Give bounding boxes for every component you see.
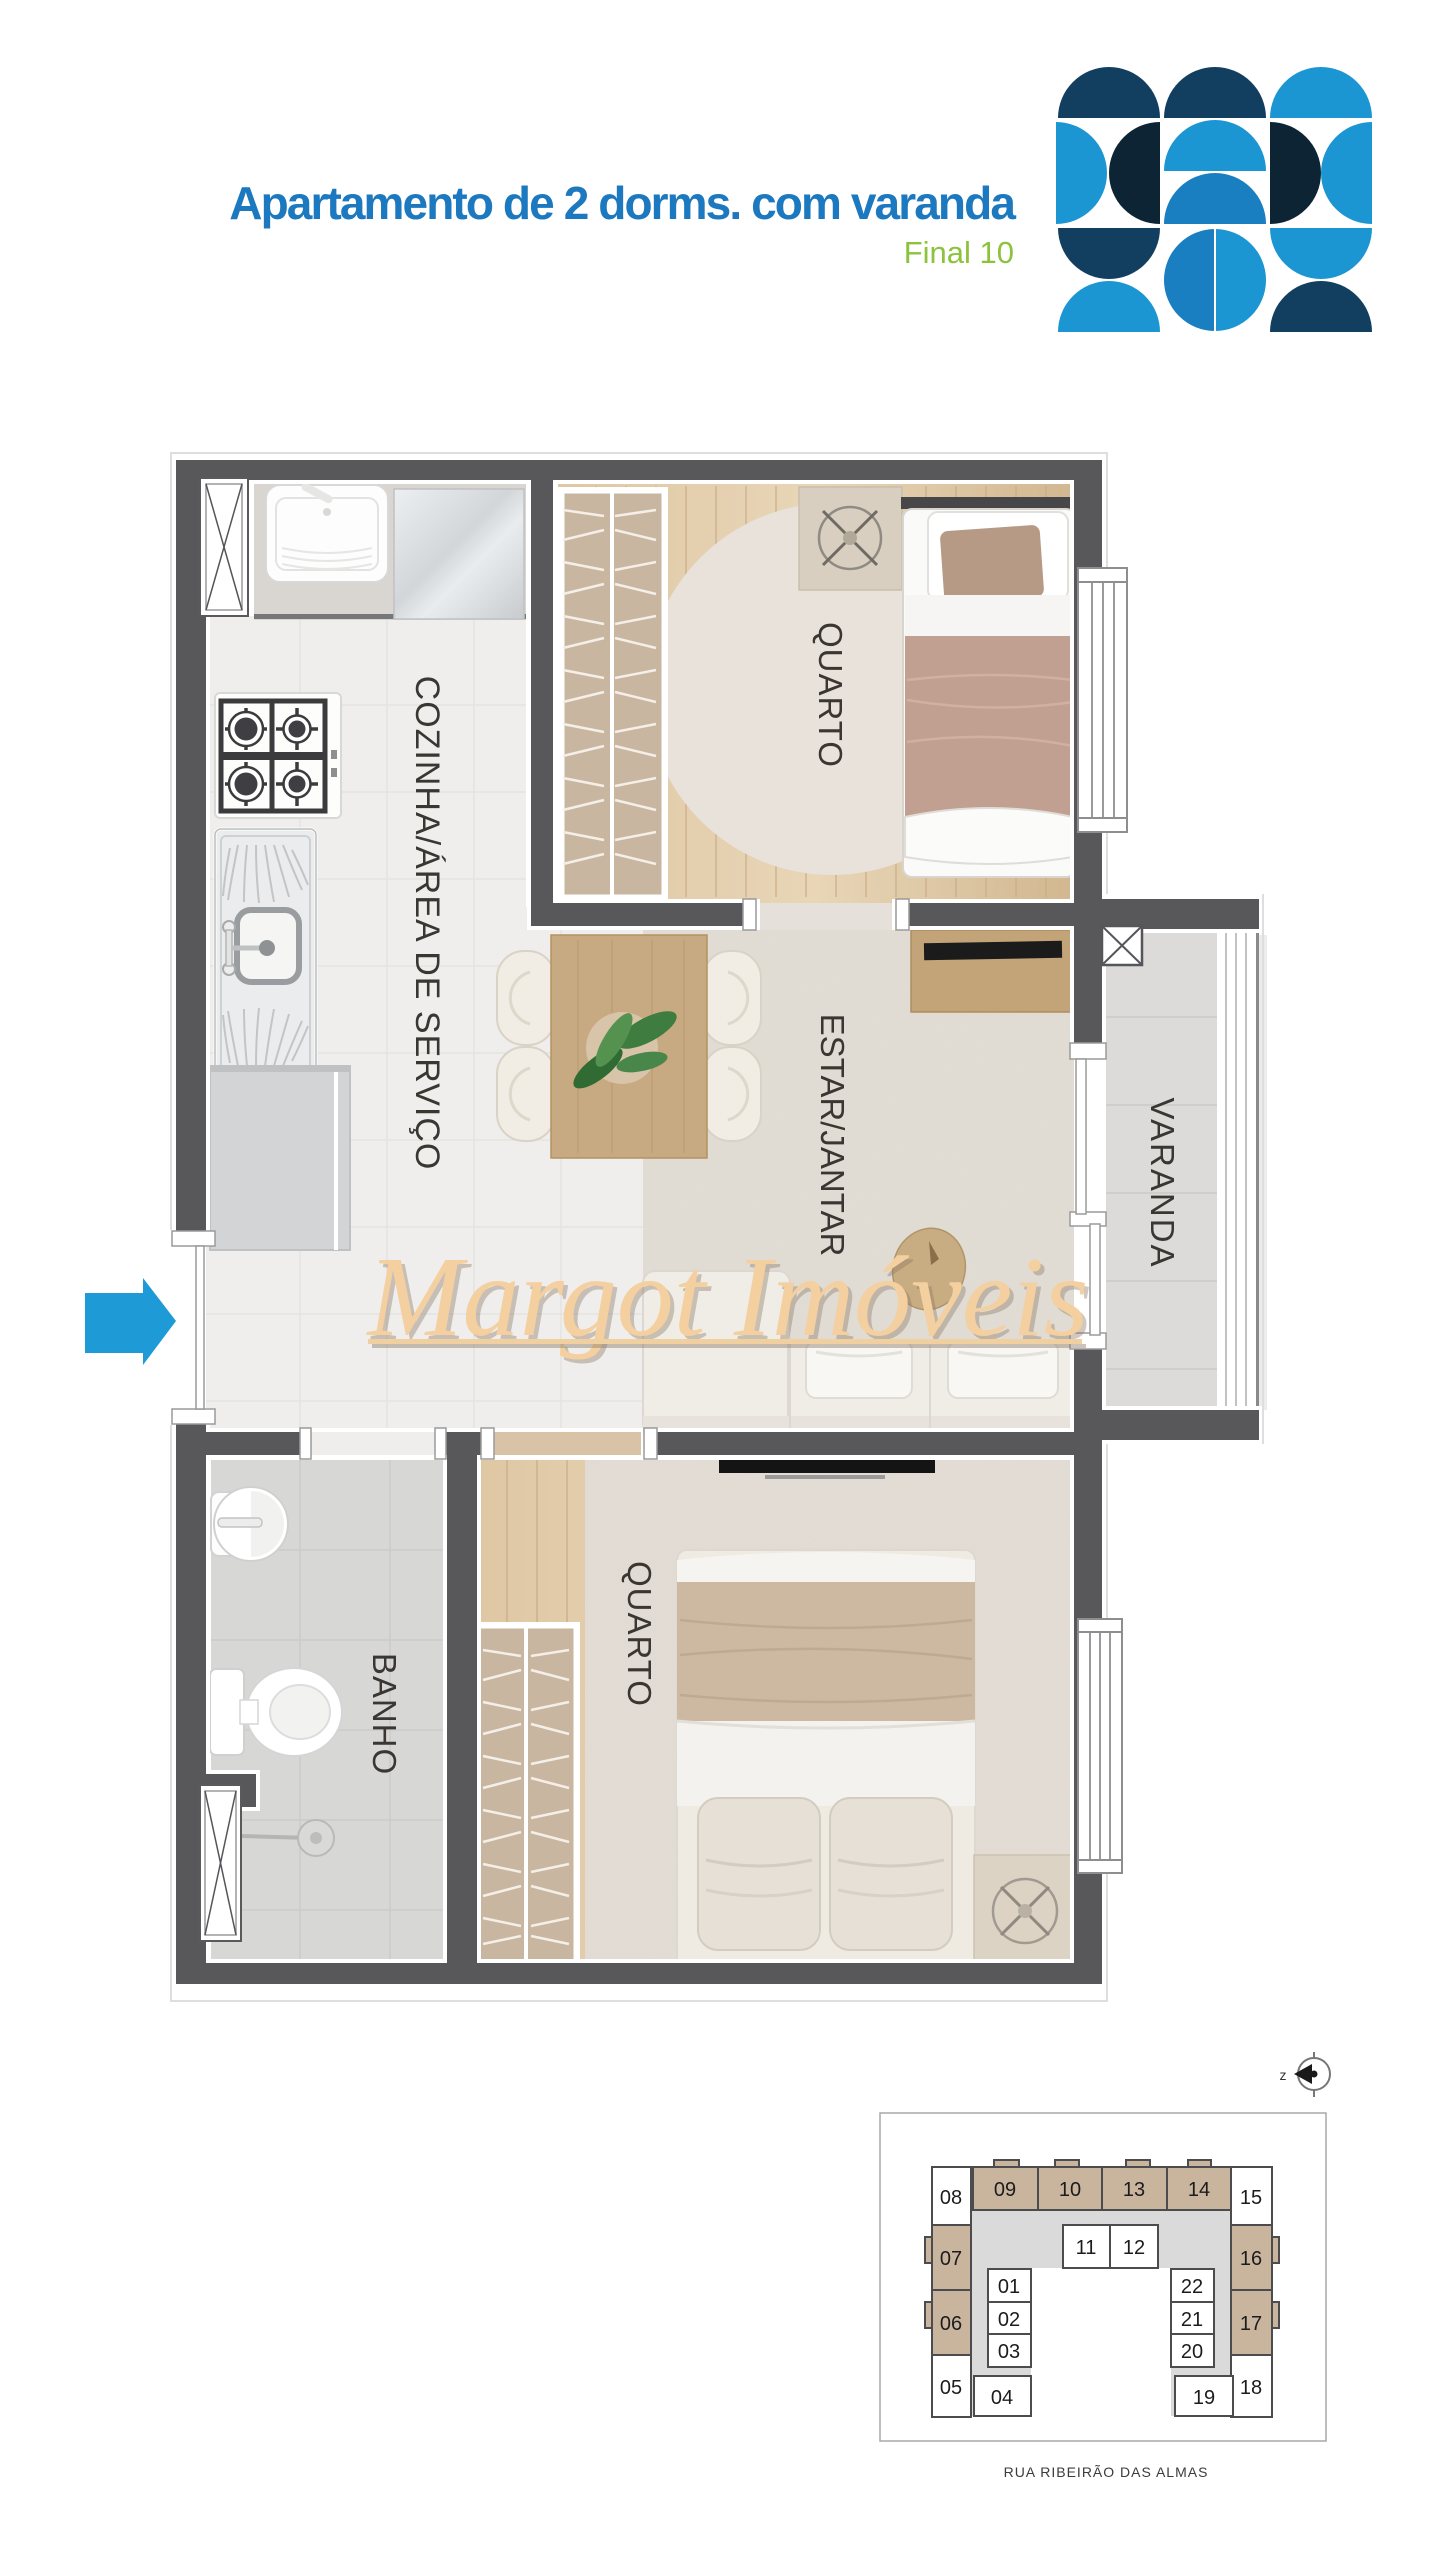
svg-text:VARANDA: VARANDA (1144, 1097, 1181, 1268)
svg-text:13: 13 (1123, 2179, 1145, 2201)
svg-text:QUARTO: QUARTO (812, 622, 849, 768)
svg-text:Final 10: Final 10 (904, 235, 1014, 270)
svg-text:16: 16 (1240, 2248, 1262, 2270)
svg-text:12: 12 (1123, 2237, 1145, 2259)
svg-text:08: 08 (940, 2187, 962, 2209)
svg-text:19: 19 (1193, 2387, 1215, 2409)
svg-text:05: 05 (940, 2377, 962, 2399)
svg-text:06: 06 (940, 2313, 962, 2335)
svg-text:17: 17 (1240, 2313, 1262, 2335)
svg-text:RUA RIBEIRÃO DAS ALMAS: RUA RIBEIRÃO DAS ALMAS (1004, 2464, 1209, 2480)
svg-text:COZINHA/ÁREA DE SERVIÇO: COZINHA/ÁREA DE SERVIÇO (408, 676, 446, 1171)
svg-text:02: 02 (998, 2309, 1020, 2331)
svg-text:BANHO: BANHO (366, 1653, 403, 1775)
svg-text:07: 07 (940, 2248, 962, 2270)
svg-text:10: 10 (1059, 2179, 1081, 2201)
svg-text:21: 21 (1181, 2309, 1203, 2331)
svg-text:22: 22 (1181, 2276, 1203, 2298)
svg-text:11: 11 (1076, 2237, 1097, 2259)
svg-text:20: 20 (1181, 2341, 1203, 2363)
svg-text:14: 14 (1188, 2179, 1210, 2201)
svg-text:01: 01 (998, 2276, 1020, 2298)
svg-text:03: 03 (998, 2341, 1020, 2363)
svg-text:ESTAR/JANTAR: ESTAR/JANTAR (814, 1014, 851, 1257)
svg-text:Apartamento de 2 dorms. com va: Apartamento de 2 dorms. com varanda (229, 177, 1016, 229)
svg-text:18: 18 (1240, 2377, 1262, 2399)
svg-text:QUARTO: QUARTO (621, 1561, 658, 1707)
svg-text:09: 09 (994, 2179, 1016, 2201)
svg-text:15: 15 (1240, 2187, 1262, 2209)
svg-text:04: 04 (991, 2387, 1013, 2409)
svg-text:z: z (1280, 2067, 1287, 2083)
